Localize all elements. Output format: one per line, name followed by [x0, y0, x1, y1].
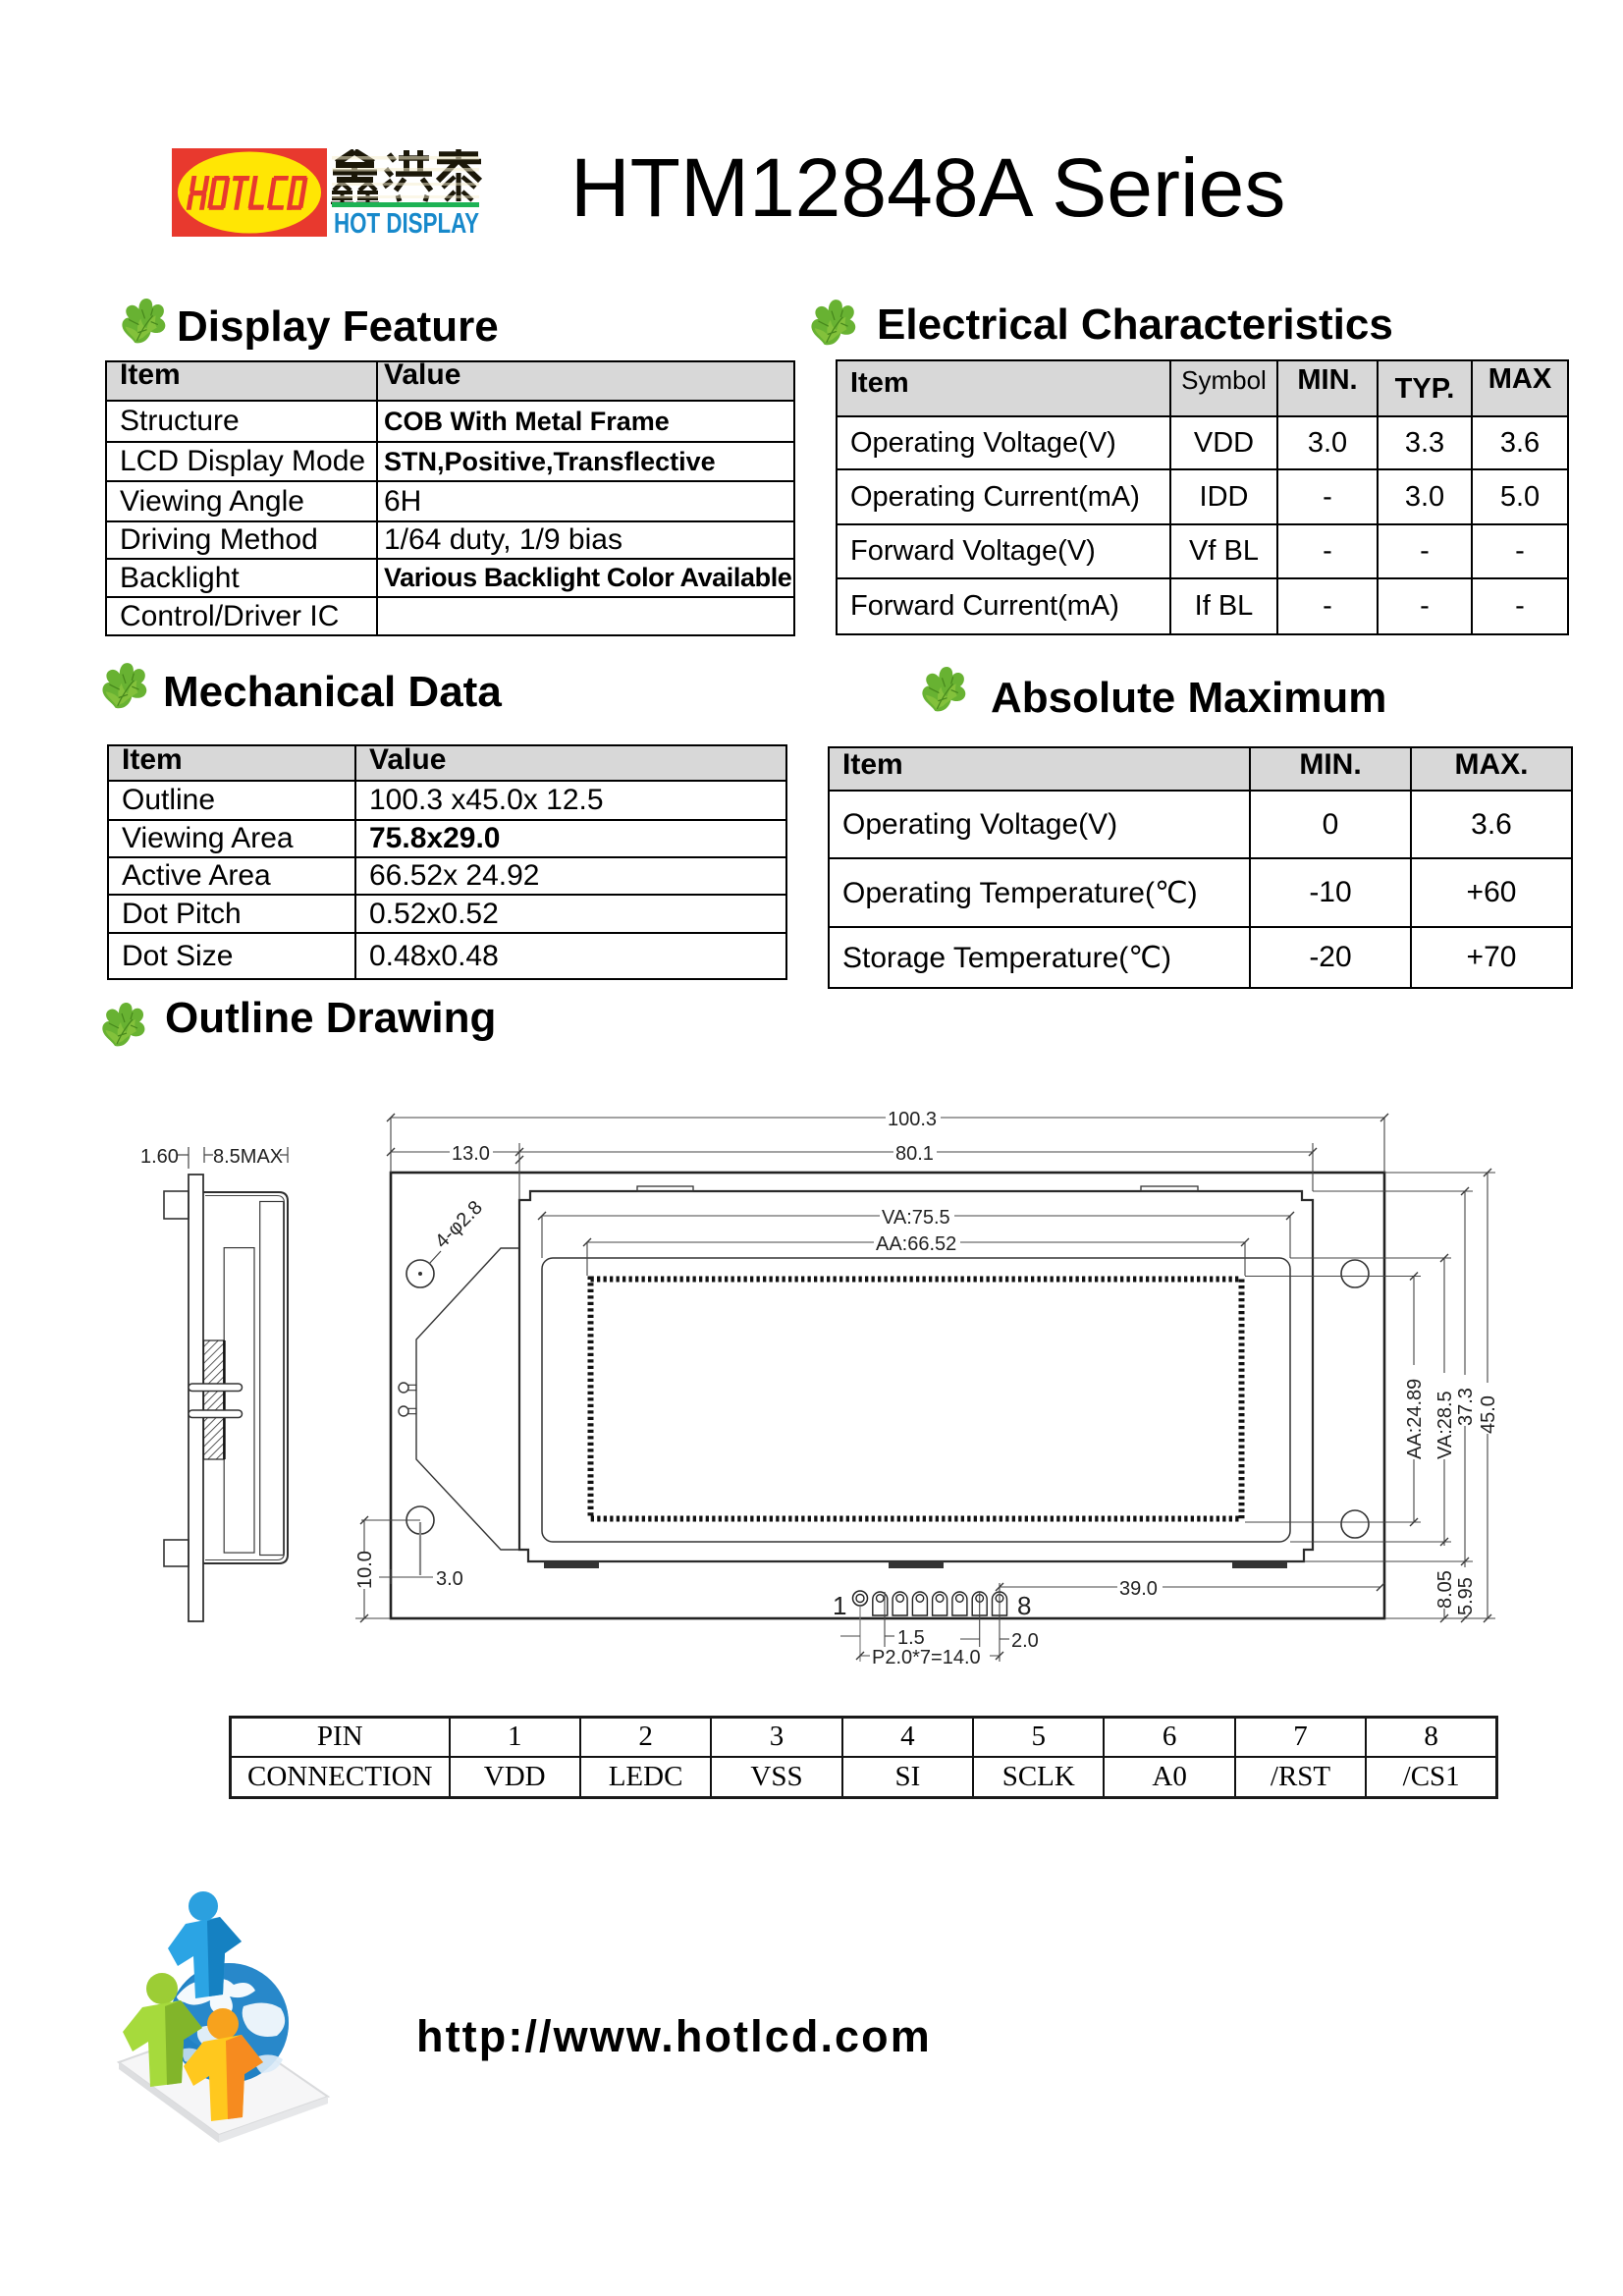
- svg-text:10.0: 10.0: [354, 1551, 376, 1589]
- svg-text:AA:66.52: AA:66.52: [876, 1233, 956, 1255]
- svg-text:39.0: 39.0: [1119, 1578, 1158, 1600]
- svg-text:AA:24.89: AA:24.89: [1404, 1379, 1426, 1459]
- svg-text:P2.0*7=14.0: P2.0*7=14.0: [872, 1647, 981, 1668]
- svg-text:4-φ2.8: 4-φ2.8: [431, 1197, 487, 1253]
- svg-text:8: 8: [1017, 1591, 1031, 1620]
- svg-text:80.1: 80.1: [895, 1143, 934, 1165]
- svg-text:3.0: 3.0: [436, 1568, 463, 1590]
- svg-text:37.3: 37.3: [1455, 1388, 1477, 1426]
- svg-text:1.60: 1.60: [140, 1146, 179, 1168]
- svg-text:100.3: 100.3: [888, 1109, 937, 1130]
- svg-text:8.05: 8.05: [1434, 1570, 1456, 1609]
- svg-text:45.0: 45.0: [1478, 1395, 1499, 1434]
- svg-text:13.0: 13.0: [452, 1143, 490, 1165]
- svg-text:2.0: 2.0: [1011, 1630, 1039, 1652]
- svg-text:5.95: 5.95: [1455, 1577, 1477, 1615]
- svg-text:1: 1: [833, 1591, 846, 1620]
- svg-text:1.5: 1.5: [897, 1627, 925, 1649]
- svg-text:VA:28.5: VA:28.5: [1434, 1391, 1456, 1459]
- svg-text:VA:75.5: VA:75.5: [882, 1207, 950, 1229]
- svg-text:8.5MAX: 8.5MAX: [213, 1146, 283, 1168]
